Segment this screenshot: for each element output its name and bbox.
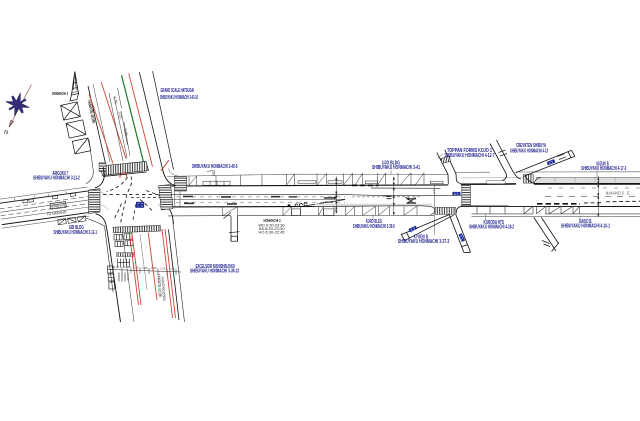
svg-text:GRAND SCALE HATSUDAI: GRAND SCALE HATSUDAI: [161, 88, 195, 94]
svg-text:SHIBUYAKU HONMACHI 3-43-10: SHIBUYAKU HONMACHI 3-43-10: [160, 95, 198, 101]
svg-text:SHIBUYAKU HONMACHI 3-37-3: SHIBUYAKU HONMACHI 3-37-3: [398, 239, 450, 245]
svg-text:SHIBUYAKU HONMACHI 3-39-5: SHIBUYAKU HONMACHI 3-39-5: [353, 224, 395, 230]
svg-text:SHIBUYAKU HONMACHI 4-18-2: SHIBUYAKU HONMACHI 4-18-2: [469, 225, 514, 231]
svg-text:SHIBUYAKU HONMACHI 3-39-13: SHIBUYAKU HONMACHI 3-39-13: [190, 269, 239, 275]
svg-text:NAKANO S.: NAKANO S.: [606, 190, 625, 195]
svg-text:SHIBUYAKU HONMACHI 4-12-7: SHIBUYAKU HONMACHI 4-12-7: [445, 153, 495, 159]
svg-text:SHIBUYAKU HONMACHI 3-41: SHIBUYAKU HONMACHI 3-41: [372, 165, 420, 171]
svg-text:HO 6:30-22:45: HO 6:30-22:45: [259, 230, 286, 235]
svg-text:1.75: 1.75: [169, 267, 175, 271]
svg-text:SHIBUYAKU HONMACHI 3-40-5: SHIBUYAKU HONMACHI 3-40-5: [192, 164, 238, 170]
svg-text:N: N: [4, 130, 9, 136]
svg-text:3.25: 3.25: [151, 266, 157, 270]
svg-text:3.25: 3.25: [160, 267, 166, 271]
svg-text:E: E: [627, 190, 630, 195]
svg-text:3.25: 3.25: [142, 266, 148, 270]
svg-text:SHIBUYAKU HONMACHI 3-12-1: SHIBUYAKU HONMACHI 3-12-1: [54, 230, 98, 236]
svg-text:SHIBUYAKU HONMACHI 4-10-1: SHIBUYAKU HONMACHI 4-10-1: [561, 224, 610, 230]
svg-text:4.75: 4.75: [114, 265, 120, 269]
svg-text:SHIBUYAKU HONMACHI 4-17-2: SHIBUYAKU HONMACHI 4-17-2: [581, 166, 626, 172]
svg-text:SHIBUYAKU HONMACHI 4-13: SHIBUYAKU HONMACHI 4-13: [510, 149, 548, 155]
svg-text:1.75: 1.75: [124, 265, 130, 269]
svg-text:SHIBUYAKU HONMACHI 3-11-2: SHIBUYAKU HONMACHI 3-11-2: [33, 175, 80, 181]
svg-text:HONMACHI 3: HONMACHI 3: [52, 91, 68, 96]
svg-text:3.25: 3.25: [133, 266, 139, 270]
svg-text:2.5: 2.5: [432, 190, 436, 195]
